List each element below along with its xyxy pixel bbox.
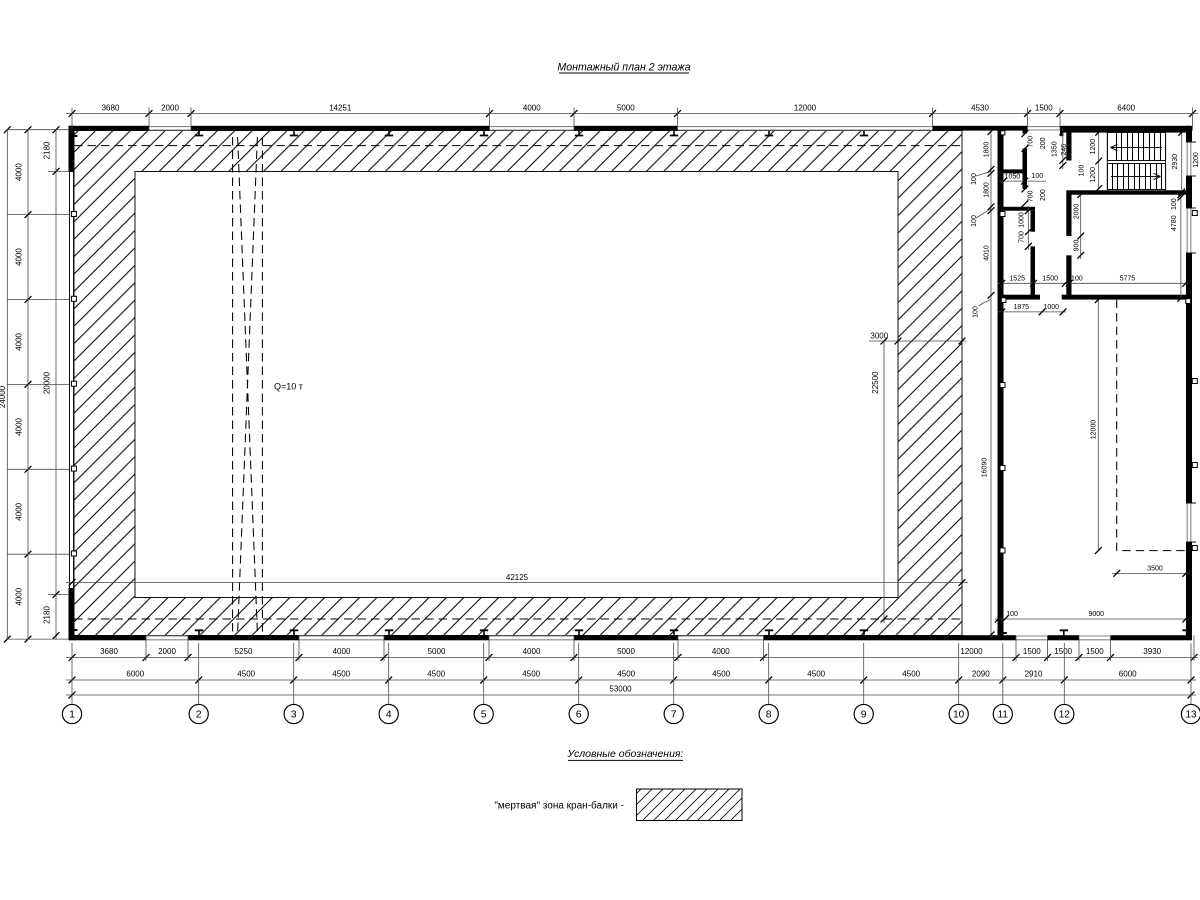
svg-text:246: 246 xyxy=(1061,144,1068,156)
svg-text:4500: 4500 xyxy=(807,670,825,679)
svg-text:100: 100 xyxy=(1006,611,1018,618)
svg-text:9: 9 xyxy=(861,709,867,721)
svg-text:100: 100 xyxy=(971,215,978,227)
svg-text:6000: 6000 xyxy=(126,670,144,679)
svg-text:100: 100 xyxy=(1079,165,1086,177)
svg-text:100: 100 xyxy=(973,306,980,318)
svg-text:4000: 4000 xyxy=(15,163,24,181)
svg-text:9000: 9000 xyxy=(1089,611,1105,618)
svg-text:4000: 4000 xyxy=(333,647,351,656)
svg-text:4780: 4780 xyxy=(1171,215,1178,231)
svg-text:4500: 4500 xyxy=(237,670,255,679)
svg-text:5000: 5000 xyxy=(428,647,446,656)
svg-text:16090: 16090 xyxy=(982,458,989,478)
svg-text:12000: 12000 xyxy=(794,104,817,113)
svg-text:4000: 4000 xyxy=(15,587,24,605)
svg-text:5: 5 xyxy=(481,709,487,721)
svg-text:6400: 6400 xyxy=(1117,104,1135,113)
svg-text:3680: 3680 xyxy=(102,104,120,113)
svg-text:11: 11 xyxy=(998,710,1009,721)
svg-text:10: 10 xyxy=(953,710,965,721)
svg-text:20000: 20000 xyxy=(43,371,52,394)
svg-text:Условные обозначения:: Условные обозначения: xyxy=(567,748,684,760)
svg-text:2000: 2000 xyxy=(158,647,176,656)
svg-text:1800: 1800 xyxy=(983,182,990,198)
svg-text:7: 7 xyxy=(671,709,677,721)
svg-text:100: 100 xyxy=(1031,173,1043,180)
svg-text:3680: 3680 xyxy=(100,647,118,656)
svg-text:5775: 5775 xyxy=(1120,275,1136,282)
svg-text:14251: 14251 xyxy=(329,104,352,113)
svg-text:4010: 4010 xyxy=(983,245,990,261)
svg-text:1525: 1525 xyxy=(1009,275,1025,282)
svg-text:100: 100 xyxy=(1071,275,1083,282)
svg-text:1500: 1500 xyxy=(1035,104,1053,113)
svg-text:1875: 1875 xyxy=(1014,304,1030,311)
svg-text:12000: 12000 xyxy=(960,647,983,656)
svg-text:24000: 24000 xyxy=(0,385,7,408)
svg-text:4500: 4500 xyxy=(617,670,635,679)
svg-text:2180: 2180 xyxy=(43,606,52,624)
svg-text:1500: 1500 xyxy=(1086,647,1104,656)
svg-text:1350: 1350 xyxy=(1052,141,1059,157)
svg-text:4000: 4000 xyxy=(523,104,541,113)
svg-text:1500: 1500 xyxy=(1054,647,1072,656)
svg-text:2910: 2910 xyxy=(1025,670,1043,679)
svg-text:700: 700 xyxy=(1027,136,1034,148)
svg-text:1500: 1500 xyxy=(1042,275,1058,282)
svg-text:4000: 4000 xyxy=(523,647,541,656)
svg-text:4500: 4500 xyxy=(902,670,920,679)
svg-text:3930: 3930 xyxy=(1143,647,1161,656)
svg-text:4530: 4530 xyxy=(971,104,989,113)
svg-text:6: 6 xyxy=(576,709,582,721)
svg-text:3500: 3500 xyxy=(1147,566,1163,573)
svg-text:53000: 53000 xyxy=(609,685,632,694)
svg-text:6000: 6000 xyxy=(1119,670,1137,679)
svg-text:1000: 1000 xyxy=(1019,212,1026,228)
svg-text:12: 12 xyxy=(1059,710,1071,721)
svg-text:700: 700 xyxy=(1019,231,1026,243)
svg-text:4500: 4500 xyxy=(712,670,730,679)
svg-text:1200: 1200 xyxy=(1090,167,1097,183)
svg-text:200: 200 xyxy=(1040,137,1047,149)
svg-text:4000: 4000 xyxy=(15,502,24,520)
svg-text:4: 4 xyxy=(386,709,392,721)
svg-text:Монтажный план 2 этажа: Монтажный план 2 этажа xyxy=(557,62,690,74)
svg-text:4500: 4500 xyxy=(522,670,540,679)
svg-text:5250: 5250 xyxy=(235,647,253,656)
svg-text:2180: 2180 xyxy=(43,141,52,159)
svg-text:12000: 12000 xyxy=(1090,420,1097,440)
svg-text:4500: 4500 xyxy=(427,670,445,679)
svg-text:1200: 1200 xyxy=(1090,139,1097,155)
svg-text:100: 100 xyxy=(971,173,978,185)
svg-text:22500: 22500 xyxy=(871,371,880,394)
svg-text:5000: 5000 xyxy=(617,104,635,113)
svg-text:900: 900 xyxy=(1073,240,1080,252)
svg-text:700: 700 xyxy=(1027,190,1034,202)
svg-text:42125: 42125 xyxy=(506,573,529,582)
svg-text:2: 2 xyxy=(196,709,202,721)
svg-text:2000: 2000 xyxy=(1073,204,1080,220)
svg-text:"мертвая" зона кран-балки -: "мертвая" зона кран-балки - xyxy=(494,800,624,812)
svg-text:13: 13 xyxy=(1185,710,1197,721)
svg-text:1000: 1000 xyxy=(1044,304,1060,311)
svg-text:5000: 5000 xyxy=(617,647,635,656)
svg-text:200: 200 xyxy=(1040,189,1047,201)
svg-text:4000: 4000 xyxy=(712,647,730,656)
svg-text:1: 1 xyxy=(69,709,75,721)
svg-text:1500: 1500 xyxy=(1023,647,1041,656)
svg-text:4000: 4000 xyxy=(15,332,24,350)
svg-text:8: 8 xyxy=(766,709,772,721)
svg-text:2000: 2000 xyxy=(161,104,179,113)
svg-text:4500: 4500 xyxy=(332,670,350,679)
svg-text:2930: 2930 xyxy=(1172,154,1179,170)
svg-text:1800: 1800 xyxy=(983,142,990,158)
svg-text:1050: 1050 xyxy=(1005,174,1021,181)
svg-text:4000: 4000 xyxy=(15,248,24,266)
svg-text:3: 3 xyxy=(291,709,297,721)
svg-text:1200: 1200 xyxy=(1193,152,1200,168)
svg-text:Q=10 т: Q=10 т xyxy=(274,382,303,392)
svg-text:2090: 2090 xyxy=(972,670,990,679)
svg-text:100: 100 xyxy=(1171,198,1178,210)
svg-text:4000: 4000 xyxy=(15,417,24,435)
